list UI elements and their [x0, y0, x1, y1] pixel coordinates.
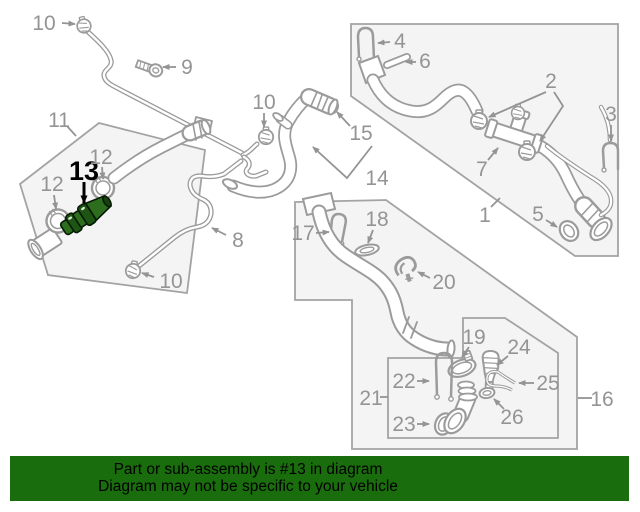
callout-10-middle: 10	[252, 91, 275, 114]
callout-10-top-left: 10	[32, 12, 55, 35]
callout-12-right: 12	[89, 146, 112, 169]
banner-line-2: Diagram may not be specific to your vehi…	[10, 478, 486, 495]
callout-7: 7	[476, 158, 488, 181]
callout-18: 18	[365, 208, 388, 231]
clamp-10-middle	[259, 127, 273, 144]
callout-25: 25	[536, 372, 559, 395]
callout-4: 4	[394, 30, 406, 53]
callout-20: 20	[432, 271, 455, 294]
callout-26: 26	[500, 406, 523, 429]
callout-8: 8	[232, 229, 244, 252]
callout-19: 19	[462, 326, 485, 349]
callout-9: 9	[181, 56, 193, 79]
callout-24: 24	[507, 336, 531, 359]
callout-23: 23	[392, 413, 415, 436]
callout-17: 17	[291, 222, 314, 245]
callout-1: 1	[479, 204, 491, 227]
callout-5: 5	[532, 203, 544, 226]
parts-diagram-page: 10 9 11 12 13 12 15 14 10 8 10 17 18 20 …	[0, 0, 640, 512]
callout-22: 22	[392, 370, 415, 393]
callout-21: 21	[359, 387, 382, 410]
callout-12-left: 12	[40, 173, 63, 196]
callout-14: 14	[365, 167, 389, 190]
banner-line-1: Part or sub-assembly is #13 in diagram	[10, 461, 486, 478]
parts-diagram: 10 9 11 12 13 12 15 14 10 8 10 17 18 20 …	[0, 0, 640, 512]
highlight-banner: Part or sub-assembly is #13 in diagram D…	[10, 456, 629, 501]
callout-15: 15	[349, 122, 372, 145]
callout-6: 6	[419, 50, 431, 73]
panel-outlines	[20, 24, 618, 449]
callout-11: 11	[48, 109, 70, 132]
callout-10-bottom: 10	[159, 270, 182, 293]
bolt-9	[135, 58, 164, 78]
callout-3: 3	[605, 103, 617, 126]
callout-16: 16	[590, 388, 613, 411]
callout-2: 2	[545, 70, 557, 93]
